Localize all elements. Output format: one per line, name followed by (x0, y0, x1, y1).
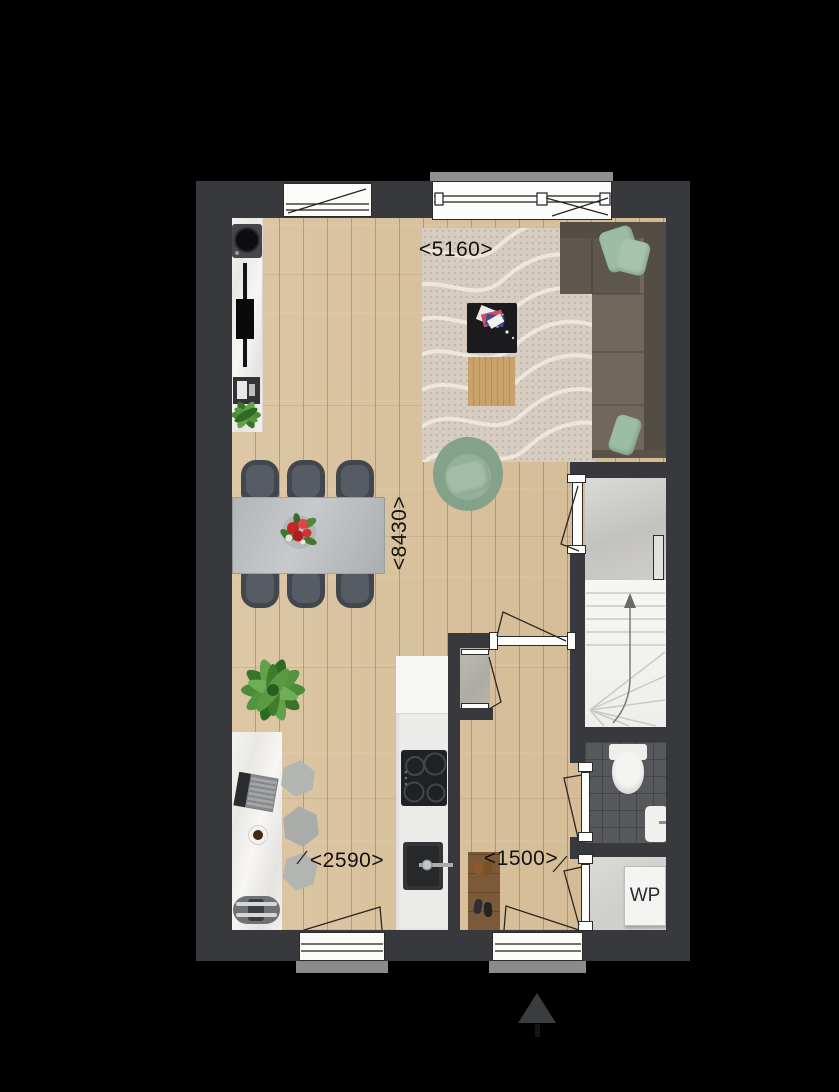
wall-closet-bottom (452, 708, 493, 720)
door-hinge (567, 545, 586, 554)
dining-table (232, 497, 385, 574)
door-hinge (578, 762, 593, 772)
window-lintel (430, 172, 613, 181)
toilet (612, 752, 644, 794)
wall-bottom (196, 930, 690, 961)
toilet-door (581, 772, 590, 833)
dining-chair (336, 460, 374, 502)
window-bottom (299, 932, 385, 961)
door-hinge (578, 854, 593, 864)
dining-chair (287, 460, 325, 502)
armchair (433, 437, 503, 511)
wall-left (196, 181, 232, 961)
floorplan-canvas: WP (0, 0, 839, 1092)
heat-pump-door (581, 864, 590, 922)
wall-stairs-toilet (585, 727, 666, 742)
north-arrow-icon (518, 993, 556, 1023)
dimension-label-hallway: <1500> (482, 847, 560, 871)
entrance-door (492, 932, 583, 961)
heat-pump-unit: WP (624, 866, 666, 926)
window-top-left (283, 183, 372, 217)
dimension-label-width: <5160> (417, 238, 495, 262)
dimension-label-depth: <8430> (388, 494, 412, 572)
door-hinge (489, 632, 498, 650)
coffee-table-black (467, 303, 517, 353)
north-arrow-stem (535, 1024, 540, 1037)
dimension-label-kitchen: <2590> (308, 849, 386, 873)
door-hinge (567, 632, 576, 650)
wall-toilet-wp (585, 843, 666, 857)
wall-kitchen-stub (448, 633, 493, 648)
door-hinge (578, 832, 593, 842)
tv (236, 299, 254, 339)
door-hinge (567, 474, 586, 483)
laptop (233, 772, 278, 812)
hall-door (572, 481, 583, 546)
washbasin (645, 806, 668, 842)
sofa-back-right (644, 238, 666, 458)
corridor-door (497, 636, 568, 646)
picture-frame (233, 377, 260, 404)
stair-railing (653, 535, 664, 580)
closet (460, 648, 490, 710)
threshold (296, 961, 388, 973)
kitchen-sink (403, 842, 443, 890)
wall-corridor-right (570, 552, 585, 763)
door-hinge (578, 921, 593, 931)
closet-panel (461, 649, 489, 655)
coffee-cup (248, 825, 268, 845)
staircase (585, 580, 666, 727)
heat-pump-label: WP (630, 885, 661, 907)
desk-appliance (233, 896, 280, 924)
shoe (483, 902, 492, 918)
cooktop (401, 750, 447, 806)
turntable (232, 224, 262, 258)
french-window-top (432, 181, 612, 220)
dining-chair (241, 460, 279, 502)
wall-right (666, 181, 690, 961)
threshold (489, 961, 586, 973)
coffee-table-wood (468, 357, 515, 406)
wall-kitchen-spine (448, 648, 460, 930)
